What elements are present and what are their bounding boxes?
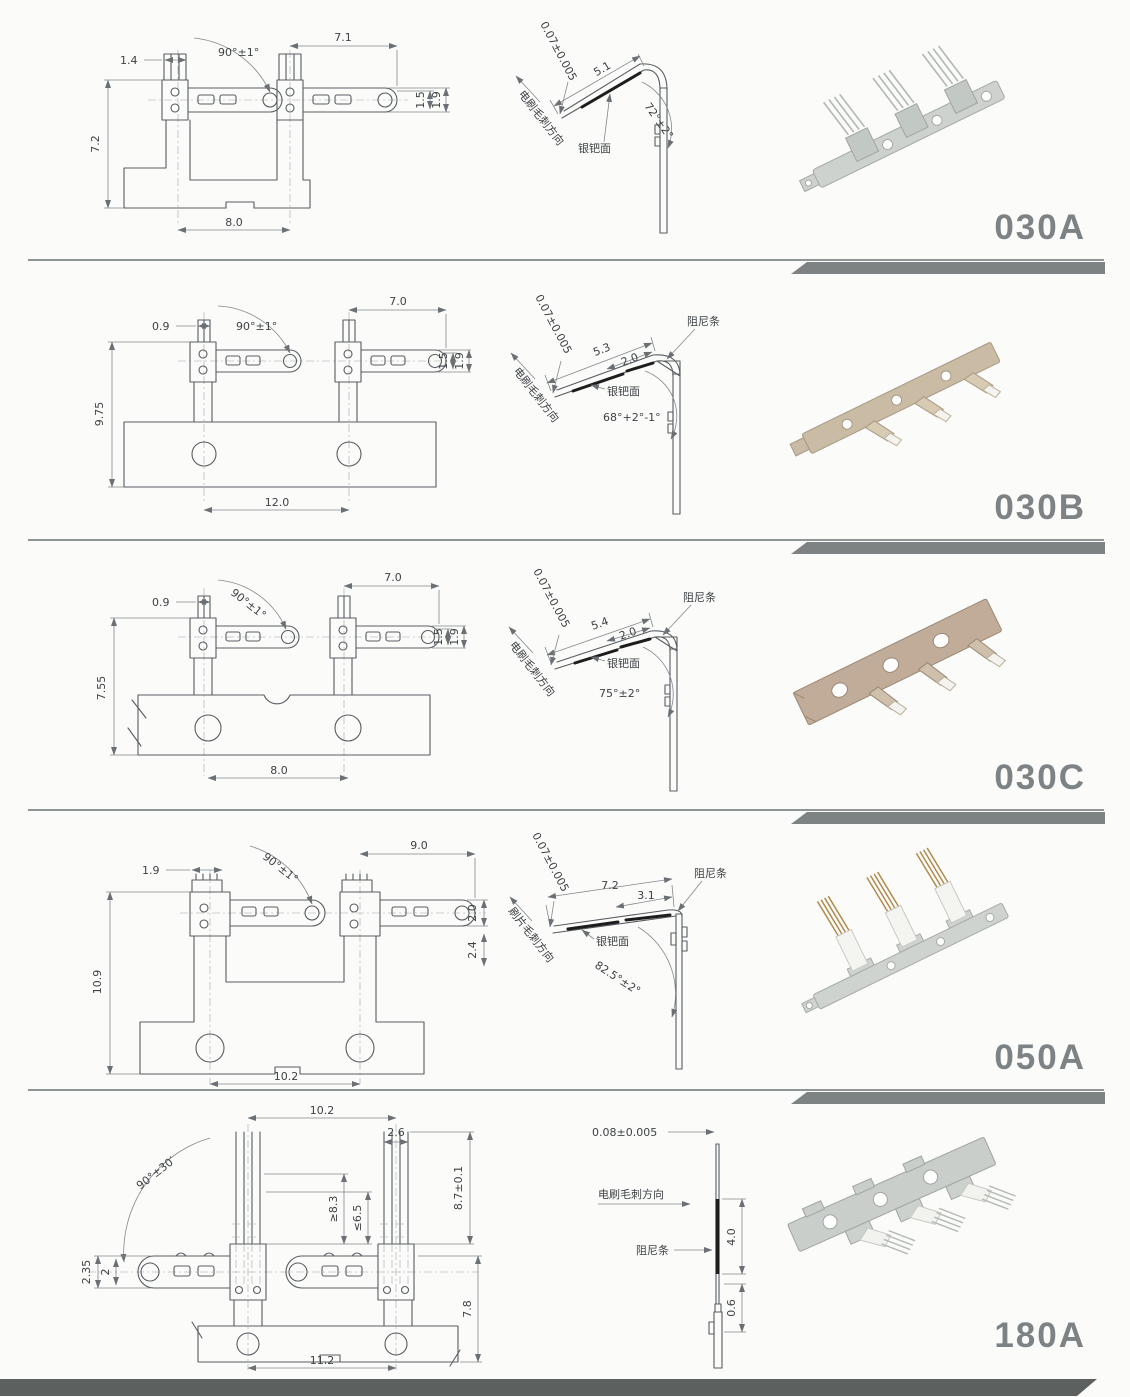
dim-height: 7.2 <box>89 135 102 153</box>
dim-angle: 90°±30′ <box>134 1154 178 1192</box>
dim-bend-angle: 75°±2° <box>599 687 640 700</box>
dim-height: 7.55 <box>95 676 108 701</box>
label-burr-direction: 刷片毛刺方向 <box>506 904 558 965</box>
front-view-030b: 0.9 90°±1° 7.0 9.75 1.5 1.9 12.0 <box>78 282 478 527</box>
product-photo-030c <box>785 576 1025 771</box>
section-divider-1 <box>0 256 1130 274</box>
label-burr-direction: 电刷毛刺方向 <box>516 87 568 148</box>
dim-pitch: 0.9 <box>152 596 170 609</box>
brush-catalog-page: { "page": { "background": "#fbfbfa", "di… <box>0 0 1130 1397</box>
front-outline-050a <box>140 874 475 1074</box>
label-burr-direction: 电刷毛刺方向 <box>511 364 563 425</box>
dim-tip-inner: 1.5 <box>414 91 427 109</box>
dim-tip-outer: 2.4 <box>466 941 479 959</box>
label-contact-surface: 银钯面 <box>607 384 640 398</box>
dim-base-width: 8.0 <box>270 764 288 777</box>
dim-height: 7.8 <box>461 1300 474 1318</box>
front-view-180a: 10.2 2.6 90°±30′ ≥8.3 ≤6.5 8.7±0.1 2.35 … <box>58 1104 488 1372</box>
side-view-030a: 5.1 0.07±0.005 电刷毛刺方向 72°±2° 银钯面 <box>492 10 742 245</box>
dim-arm-length: 5.4 <box>589 615 610 633</box>
front-outline-030b <box>124 320 446 487</box>
model-label-180a: 180A <box>994 1316 1086 1356</box>
dim-damper-offset: 2.0 <box>619 351 640 369</box>
dim-angle: 90°±1° <box>228 586 268 622</box>
label-damper: 阻尼条 <box>687 314 720 328</box>
dim-base-width: 12.0 <box>265 496 290 509</box>
front-view-030a: 7.2 1.4 90°±1° 7.1 1.5 1.9 8.0 <box>78 12 478 247</box>
label-damper: 阻尼条 <box>683 590 716 604</box>
dim-thickness: 0.07±0.005 <box>532 292 574 356</box>
side-outline-180a <box>709 1144 722 1368</box>
bottom-bar <box>0 1379 1097 1396</box>
divider-line <box>28 1089 1104 1091</box>
row-050a: 1.9 90°±1° 9.0 10.9 2.0 2.4 10.2 7.2 3.1 <box>0 824 1130 1086</box>
divider-line <box>28 259 1104 261</box>
dim-pitch: 0.9 <box>152 320 170 333</box>
dim-tail-length: 0.6 <box>725 1299 738 1317</box>
dim-brush-length: 8.7±0.1 <box>452 1166 465 1210</box>
dim-damper-offset: 3.1 <box>637 889 655 902</box>
side-outline-030c <box>555 631 677 791</box>
divider-line <box>28 539 1104 541</box>
dim-damper-offset: 2.0 <box>617 625 638 643</box>
label-burr-direction: 电刷毛刺方向 <box>507 638 559 699</box>
dim-arm-length: 9.0 <box>410 839 428 852</box>
row-030a: 7.2 1.4 90°±1° 7.1 1.5 1.9 8.0 5.1 0.07±… <box>0 0 1130 256</box>
dim-tip-outer: 1.9 <box>448 628 461 646</box>
dim-damper-length: 4.0 <box>725 1228 738 1246</box>
side-view-050a: 7.2 3.1 0.07±0.005 刷片毛刺方向 阻尼条 银钯面 82.5°±… <box>498 829 748 1079</box>
divider-band <box>791 812 1105 824</box>
side-view-030b: 5.3 2.0 0.07±0.005 电刷毛刺方向 阻尼条 银钯面 68°+2°… <box>495 279 745 529</box>
dim-tip-outer: 2.35 <box>80 1260 93 1285</box>
dim-span: 10.2 <box>310 1104 335 1117</box>
label-damper: 阻尼条 <box>694 866 727 880</box>
dim-base-width: 8.0 <box>225 216 243 229</box>
side-view-030c: 5.4 2.0 0.07±0.005 电刷毛刺方向 阻尼条 银钯面 75°±2° <box>495 557 745 797</box>
dim-tip-inner: 2.0 <box>466 904 479 922</box>
section-divider-4 <box>0 1086 1130 1104</box>
dim-arm-length: 7.2 <box>601 879 619 892</box>
dim-thickness: 0.07±0.005 <box>537 19 579 83</box>
front-view-030c: 0.9 90°±1° 7.0 7.55 1.5 1.9 8.0 <box>78 560 478 800</box>
row-180a: 10.2 2.6 90°±30′ ≥8.3 ≤6.5 8.7±0.1 2.35 … <box>0 1104 1130 1372</box>
dim-arm-length: 5.1 <box>591 59 613 79</box>
divider-band <box>791 262 1105 274</box>
dim-arm-length: 7.0 <box>384 571 402 584</box>
row-030c: 0.9 90°±1° 7.0 7.55 1.5 1.9 8.0 5.4 2.0 <box>0 554 1130 806</box>
front-outline-030a <box>124 54 397 208</box>
dim-thickness: 0.08±0.005 <box>592 1126 657 1139</box>
section-divider-2 <box>0 536 1130 554</box>
dim-clamp-length: ≤6.5 <box>351 1205 364 1232</box>
dim-tip-inner: 1.5 <box>432 628 445 646</box>
product-photo-030b <box>785 306 1025 501</box>
dim-angle: 90°±1° <box>260 850 300 886</box>
dim-base-width: 11.2 <box>310 1354 335 1367</box>
dim-pitch: 1.4 <box>120 54 138 67</box>
model-label-030a: 030A <box>994 208 1086 248</box>
dim-arm-length: 7.1 <box>334 31 352 44</box>
label-contact-surface: 银钯面 <box>596 934 629 948</box>
label-burr-direction: 电刷毛刺方向 <box>598 1187 664 1201</box>
dim-base-width: 10.2 <box>274 1070 299 1083</box>
dim-tip-outer: 1.9 <box>453 352 466 370</box>
dim-angle: 90°±1° <box>218 46 259 59</box>
divider-band <box>791 542 1105 554</box>
dim-arm-length: 5.3 <box>591 341 612 359</box>
dim-thickness: 0.07±0.005 <box>529 830 571 894</box>
dim-angle: 90°±1° <box>236 320 277 333</box>
dim-height: 10.9 <box>91 970 104 995</box>
model-label-030b: 030B <box>994 488 1086 528</box>
side-view-180a: 0.08±0.005 电刷毛刺方向 阻尼条 4.0 0.6 <box>540 1104 780 1372</box>
model-label-050a: 050A <box>994 1038 1086 1078</box>
section-divider-3 <box>0 806 1130 824</box>
dim-pitch: 2.6 <box>387 1126 405 1139</box>
side-outline-050a <box>553 910 687 1069</box>
divider-line <box>28 809 1104 811</box>
dim-bend-angle: 68°+2°-1° <box>603 411 661 424</box>
divider-band <box>791 1092 1105 1104</box>
front-outline-030c <box>128 596 439 755</box>
dim-height: 9.75 <box>93 402 106 427</box>
label-contact-surface: 银钯面 <box>578 141 611 155</box>
product-photo-050a <box>790 842 1030 1052</box>
dim-arm-length: 7.0 <box>389 295 407 308</box>
product-photo-030a <box>790 38 1030 233</box>
product-photo-180a <box>785 1118 1025 1333</box>
front-outline-180a <box>138 1132 460 1366</box>
label-damper: 阻尼条 <box>636 1243 669 1257</box>
dim-bend-angle: 82.5°±2° <box>592 959 642 998</box>
dim-free-length: ≥8.3 <box>327 1196 340 1223</box>
model-label-030c: 030C <box>994 758 1086 798</box>
dim-thickness: 0.07±0.005 <box>530 566 572 630</box>
dim-tip-inner: 1.5 <box>437 352 450 370</box>
side-outline-030b <box>555 355 680 514</box>
label-contact-surface: 银钯面 <box>607 656 640 670</box>
dim-tip-outer: 1.9 <box>430 91 443 109</box>
row-030b: 0.9 90°±1° 7.0 9.75 1.5 1.9 12.0 5.3 2.0… <box>0 274 1130 536</box>
dim-pitch: 1.9 <box>142 864 160 877</box>
dim-tip-inner: 2 <box>99 1269 112 1276</box>
front-view-050a: 1.9 90°±1° 9.0 10.9 2.0 2.4 10.2 <box>72 830 492 1090</box>
